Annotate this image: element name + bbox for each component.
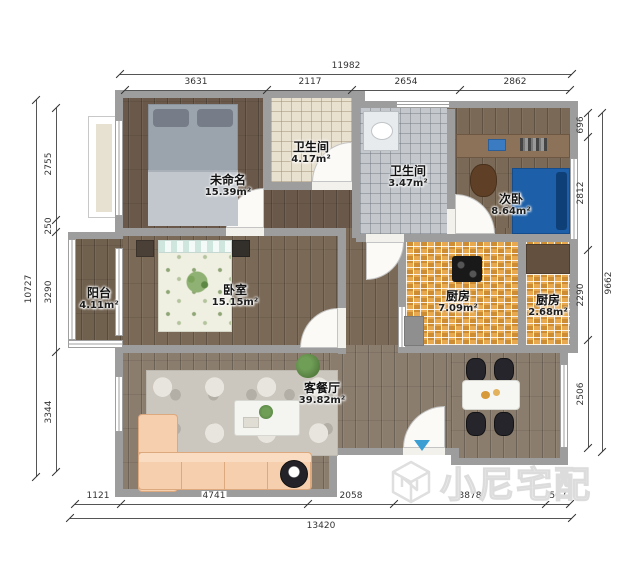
dining-chair bbox=[466, 412, 486, 436]
dim-line-left-total bbox=[36, 100, 37, 477]
dim-right-total-label: 9662 bbox=[604, 271, 614, 296]
dim-top-segment-1-label: 3631 bbox=[184, 77, 209, 87]
dim-right-segment-2-label: 2812 bbox=[576, 181, 586, 206]
room-label-bedroom-master: 卧室 15.15m² bbox=[212, 283, 258, 309]
floor-plan-canvas: 未命名 15.39m² 卫生间 4.17m² 卫生间 3.47m² 次卧 8.6… bbox=[0, 0, 640, 568]
wall-second-bedroom-left bbox=[447, 109, 455, 209]
wall-hall-vertical bbox=[352, 98, 360, 238]
door-gap-bathroom-main bbox=[312, 182, 352, 190]
door-gap-second-bedroom bbox=[447, 209, 455, 234]
dim-line-bottom-total bbox=[70, 518, 572, 519]
watermark: 小尼宅配 bbox=[388, 456, 592, 508]
dining-table bbox=[462, 380, 520, 410]
dim-left-segment-1-label: 2755 bbox=[44, 152, 54, 177]
room-label-balcony: 阳台 4.11m² bbox=[79, 286, 118, 312]
dim-bottom-total-label: 13420 bbox=[306, 521, 337, 531]
nightstand bbox=[232, 240, 250, 257]
coffee-table bbox=[234, 400, 300, 436]
dim-line-top-total bbox=[120, 74, 572, 75]
dim-line-right-total bbox=[602, 113, 603, 452]
watermark-cube-logo-icon bbox=[388, 459, 434, 505]
dim-line-left-segments bbox=[56, 108, 57, 472]
window-bathroom-second-top bbox=[396, 101, 450, 108]
wall-bottom-mid bbox=[329, 448, 405, 455]
bed-second-pillow bbox=[556, 172, 567, 230]
dining-chair bbox=[494, 412, 514, 436]
dim-top-segment-2-label: 2117 bbox=[298, 77, 323, 87]
room-label-bathroom-second: 卫生间 3.47m² bbox=[388, 164, 427, 190]
table-food bbox=[493, 389, 500, 396]
laptop bbox=[488, 139, 506, 151]
bean-bag bbox=[280, 460, 308, 488]
kitchen-small-counter bbox=[526, 244, 570, 274]
table-plant-icon bbox=[259, 405, 273, 419]
dim-right-segment-4-label: 2506 bbox=[576, 382, 586, 407]
dim-left-segment-3-label: 3290 bbox=[44, 280, 54, 305]
floor-plant-icon bbox=[296, 354, 320, 378]
dim-top-segment-3-label: 2654 bbox=[394, 77, 419, 87]
kitchen-counter bbox=[404, 316, 424, 346]
window-balcony-bottom bbox=[68, 340, 123, 348]
table-tray bbox=[243, 417, 259, 428]
window-dining-right bbox=[560, 364, 568, 448]
bed-master-floral-throw bbox=[178, 268, 216, 296]
washbasin-sink bbox=[371, 122, 393, 140]
dim-left-segment-4-label: 3344 bbox=[44, 400, 54, 425]
wall-top-left bbox=[115, 90, 365, 98]
door-gap-bedroom-unnamed bbox=[226, 228, 264, 236]
books bbox=[520, 138, 548, 151]
pillow bbox=[197, 109, 233, 127]
dim-left-segment-2-label: 250 bbox=[44, 216, 54, 235]
dim-bottom-segment-1-label: 1121 bbox=[86, 491, 111, 501]
dining-chair bbox=[466, 358, 486, 382]
bay-window-sill bbox=[94, 122, 114, 214]
door-gap-bathroom-second bbox=[366, 234, 404, 242]
dim-bottom-segment-3-label: 2058 bbox=[339, 491, 364, 501]
wall-top-right bbox=[352, 101, 578, 108]
nightstand bbox=[136, 240, 154, 257]
desk bbox=[456, 134, 570, 158]
entry-direction-arrow-icon bbox=[414, 440, 430, 451]
dim-line-right-segments bbox=[588, 113, 589, 448]
washbasin bbox=[363, 111, 399, 151]
dim-right-segment-1-label: 696 bbox=[576, 115, 586, 134]
dim-line-top-segments bbox=[125, 90, 570, 91]
pillow bbox=[153, 109, 189, 127]
dim-top-segment-4-label: 2862 bbox=[503, 77, 528, 87]
door-gap-bedroom-master bbox=[338, 308, 346, 348]
bed-master-headboard bbox=[158, 240, 232, 253]
bay-window-frame bbox=[88, 116, 118, 218]
window-bedroom-unnamed-left bbox=[115, 120, 123, 216]
room-label-living-dining: 客餐厅 39.82m² bbox=[299, 381, 345, 407]
wall-bathroom-main-left bbox=[263, 90, 271, 190]
room-label-bathroom-main: 卫生间 4.17m² bbox=[291, 140, 330, 166]
wall-kitchen-bottom bbox=[398, 345, 578, 353]
room-label-bedroom-unnamed: 未命名 15.39m² bbox=[205, 173, 251, 199]
watermark-brand-text: 小尼宅配 bbox=[440, 456, 592, 508]
dim-top-total-label: 11982 bbox=[331, 61, 362, 71]
window-balcony-left bbox=[68, 239, 76, 340]
dim-bottom-segment-2-label: 4741 bbox=[202, 491, 227, 501]
dining-chair bbox=[494, 358, 514, 382]
wall-kitchen-separator bbox=[518, 242, 526, 345]
window-living-left bbox=[115, 376, 123, 432]
table-food bbox=[481, 391, 490, 399]
stove bbox=[452, 256, 482, 282]
dim-left-total-label: 10727 bbox=[24, 274, 34, 305]
room-label-kitchen-small: 厨房 2.68m² bbox=[528, 293, 567, 319]
room-label-bedroom-second: 次卧 8.64m² bbox=[491, 192, 530, 218]
dim-right-segment-3-label: 2290 bbox=[576, 283, 586, 308]
room-label-kitchen-main: 厨房 7.09m² bbox=[438, 289, 477, 315]
